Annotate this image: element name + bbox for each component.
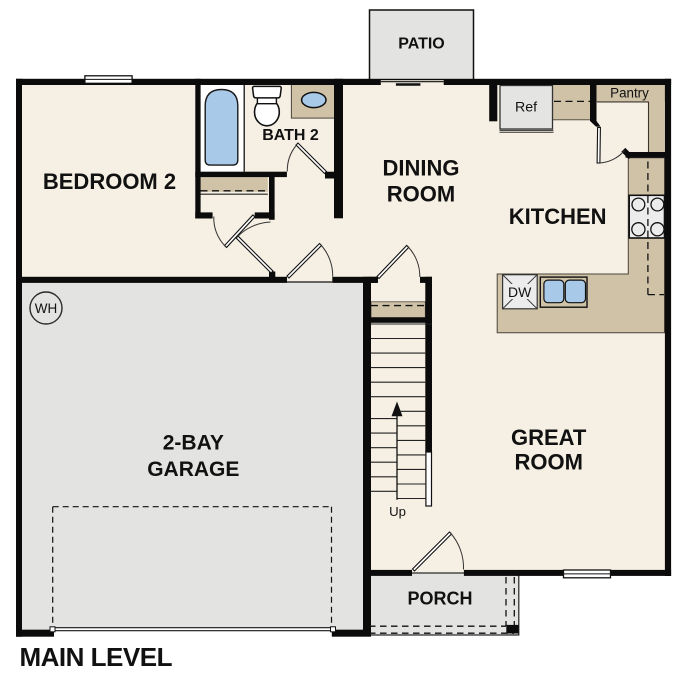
svg-text:Pantry: Pantry (610, 85, 649, 100)
svg-text:GARAGE: GARAGE (147, 458, 239, 481)
svg-text:KITCHEN: KITCHEN (509, 204, 607, 229)
svg-text:ROOM: ROOM (514, 450, 582, 475)
svg-text:PATIO: PATIO (398, 36, 445, 53)
svg-text:DINING: DINING (383, 156, 460, 181)
svg-text:BATH 2: BATH 2 (262, 127, 319, 144)
svg-text:Ref: Ref (515, 100, 537, 116)
svg-text:GREAT: GREAT (511, 425, 587, 450)
svg-text:ROOM: ROOM (387, 181, 455, 206)
svg-text:MAIN LEVEL: MAIN LEVEL (20, 642, 173, 672)
svg-text:BEDROOM 2: BEDROOM 2 (43, 169, 176, 194)
svg-text:DW: DW (508, 284, 532, 300)
svg-text:PORCH: PORCH (407, 589, 472, 609)
svg-text:Up: Up (389, 504, 406, 519)
svg-text:2-BAY: 2-BAY (163, 432, 224, 455)
svg-text:WH: WH (35, 301, 58, 316)
